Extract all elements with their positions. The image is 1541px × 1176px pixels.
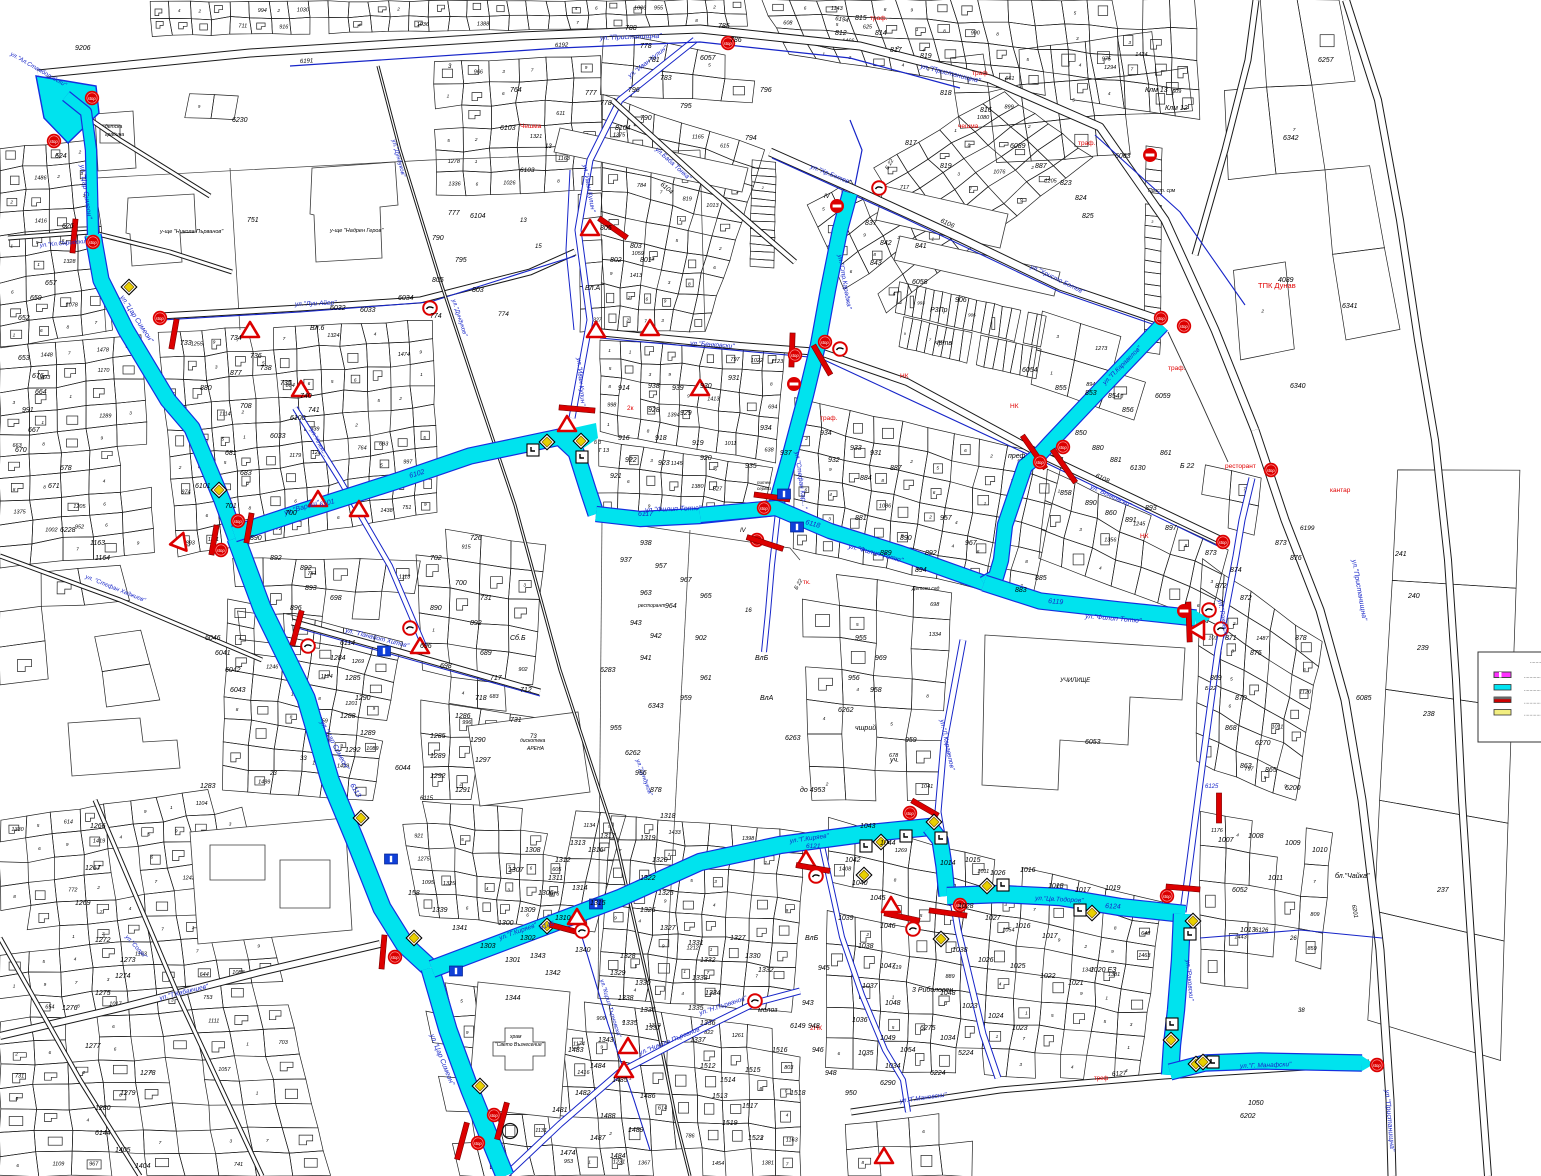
svg-text:9: 9	[424, 502, 427, 507]
svg-text:1286: 1286	[455, 713, 471, 720]
svg-text:9: 9	[340, 743, 343, 748]
svg-text:1275: 1275	[95, 990, 111, 997]
svg-text:921: 921	[414, 834, 423, 840]
svg-text:965: 965	[700, 593, 712, 600]
svg-text:664: 664	[35, 389, 47, 396]
svg-text:3: 3	[1019, 1062, 1022, 1067]
svg-text:1026: 1026	[990, 870, 1006, 877]
svg-text:6052: 6052	[1232, 887, 1248, 894]
svg-text:2: 2	[56, 174, 60, 179]
svg-text:13: 13	[545, 144, 552, 150]
svg-text:880: 880	[200, 385, 212, 392]
svg-text:889: 889	[880, 550, 892, 557]
svg-text:6: 6	[933, 490, 936, 495]
svg-text:1046: 1046	[880, 923, 896, 930]
svg-text:786: 786	[685, 1134, 695, 1140]
svg-text:6: 6	[713, 265, 716, 270]
svg-text:1246: 1246	[266, 664, 279, 670]
svg-text:5: 5	[423, 435, 426, 440]
svg-text:6: 6	[977, 549, 980, 554]
svg-text:878: 878	[1295, 635, 1307, 642]
svg-text:4: 4	[999, 982, 1002, 987]
svg-text:6: 6	[595, 6, 598, 11]
svg-text:1310: 1310	[555, 915, 571, 922]
svg-text:4: 4	[1108, 91, 1111, 96]
svg-text:3: 3	[1076, 36, 1079, 41]
svg-text:2: 2	[398, 396, 402, 401]
svg-text:6130: 6130	[1130, 465, 1146, 472]
svg-text:7: 7	[531, 68, 534, 73]
svg-text:3: 3	[1128, 40, 1131, 45]
svg-text:887: 887	[890, 465, 903, 472]
svg-text:681: 681	[225, 450, 237, 457]
svg-text:1331: 1331	[688, 940, 704, 947]
svg-text:1018: 1018	[1048, 883, 1064, 890]
svg-text:948: 948	[808, 1023, 820, 1030]
svg-text:............: ............	[1524, 700, 1541, 706]
svg-text:854: 854	[1108, 393, 1120, 400]
svg-text:ВлА: ВлА	[760, 695, 774, 702]
svg-text:6127: 6127	[1112, 1070, 1127, 1078]
svg-text:796: 796	[628, 87, 640, 94]
svg-text:1487: 1487	[1256, 636, 1269, 642]
svg-text:717: 717	[490, 675, 503, 682]
svg-text:1: 1	[420, 372, 423, 377]
svg-text:6: 6	[466, 906, 469, 911]
svg-text:8: 8	[249, 505, 252, 510]
svg-text:9: 9	[101, 436, 104, 441]
svg-text:8: 8	[236, 707, 239, 712]
svg-text:8: 8	[43, 485, 46, 490]
svg-text:1010: 1010	[1312, 847, 1328, 854]
svg-text:9: 9	[786, 908, 789, 913]
svg-text:5: 5	[447, 138, 450, 143]
svg-text:676: 676	[32, 373, 44, 380]
svg-text:608: 608	[783, 20, 793, 26]
svg-text:916: 916	[279, 24, 289, 30]
svg-text:6343: 6343	[648, 703, 664, 710]
svg-text:1025: 1025	[1010, 963, 1026, 970]
svg-text:1275: 1275	[418, 857, 431, 863]
svg-text:1027: 1027	[985, 915, 1002, 922]
svg-text:914: 914	[618, 385, 630, 392]
svg-text:храм: храм	[509, 1034, 522, 1040]
svg-text:1336: 1336	[448, 181, 461, 187]
svg-text:1134: 1134	[584, 823, 596, 829]
svg-text:1289: 1289	[99, 414, 111, 420]
svg-text:6: 6	[308, 381, 311, 386]
svg-text:6224: 6224	[930, 1070, 946, 1077]
svg-text:237: 237	[1436, 887, 1450, 894]
svg-text:9: 9	[257, 944, 260, 949]
svg-text:8104: 8104	[615, 125, 631, 132]
svg-text:1269: 1269	[352, 659, 364, 665]
svg-text:893: 893	[305, 585, 317, 592]
svg-text:9: 9	[664, 299, 667, 304]
svg-text:683: 683	[489, 694, 499, 700]
svg-text:696: 696	[420, 643, 432, 650]
svg-text:stop: stop	[1180, 324, 1189, 329]
svg-text:967: 967	[89, 1162, 99, 1168]
svg-text:958: 958	[870, 687, 882, 694]
svg-text:1297: 1297	[475, 757, 492, 764]
svg-text:stop: stop	[156, 316, 165, 321]
svg-text:7: 7	[969, 187, 972, 192]
svg-text:1269: 1269	[895, 848, 907, 854]
svg-text:648: 648	[1141, 931, 1151, 937]
svg-text:2: 2	[825, 782, 829, 787]
svg-text:920: 920	[700, 455, 712, 462]
svg-text:stop: stop	[391, 955, 400, 960]
svg-text:6033: 6033	[270, 433, 286, 440]
svg-text:740: 740	[300, 393, 312, 400]
svg-text:1482: 1482	[575, 1090, 591, 1097]
svg-text:4: 4	[634, 987, 637, 992]
svg-text:5: 5	[15, 1096, 18, 1101]
svg-text:2: 2	[712, 5, 716, 10]
svg-text:8: 8	[1114, 925, 1117, 930]
svg-text:1011: 1011	[977, 869, 989, 875]
svg-text:5: 5	[460, 998, 463, 1003]
svg-text:955: 955	[855, 635, 867, 642]
svg-text:701: 701	[225, 503, 237, 510]
svg-text:6103: 6103	[520, 167, 535, 174]
svg-text:653: 653	[18, 355, 30, 362]
svg-text:7: 7	[644, 318, 647, 323]
svg-text:1285: 1285	[430, 733, 446, 740]
svg-text:8: 8	[968, 143, 971, 148]
svg-text:751: 751	[247, 217, 259, 224]
svg-text:711: 711	[238, 24, 247, 30]
svg-text:1: 1	[246, 1041, 249, 1046]
svg-text:1448: 1448	[41, 352, 54, 358]
svg-text:6283: 6283	[600, 667, 616, 674]
svg-text:5: 5	[1026, 57, 1029, 62]
svg-text:1324: 1324	[327, 333, 339, 339]
svg-text:5: 5	[892, 1025, 895, 1030]
svg-text:6149: 6149	[790, 1023, 806, 1030]
svg-text:6: 6	[105, 522, 108, 527]
svg-text:802: 802	[610, 257, 622, 264]
svg-text:918: 918	[655, 435, 667, 442]
svg-text:4: 4	[1071, 1065, 1074, 1070]
svg-text:785: 785	[718, 23, 730, 30]
svg-text:819: 819	[683, 197, 692, 203]
svg-text:803: 803	[784, 1065, 794, 1071]
svg-text:777: 777	[585, 90, 598, 97]
svg-text:1013: 1013	[1240, 927, 1256, 934]
svg-text:1334: 1334	[929, 632, 941, 638]
svg-text:241: 241	[1394, 551, 1407, 558]
svg-text:885: 885	[1035, 575, 1047, 582]
svg-text:stop: stop	[1267, 468, 1276, 473]
svg-text:9: 9	[66, 842, 69, 847]
svg-text:5: 5	[377, 398, 380, 403]
svg-text:1404: 1404	[135, 1163, 151, 1170]
svg-text:6117: 6117	[638, 511, 654, 518]
svg-text:2: 2	[459, 781, 463, 786]
svg-text:1343: 1343	[530, 953, 546, 960]
svg-text:1336: 1336	[700, 1020, 716, 1027]
svg-text:1288: 1288	[340, 713, 356, 720]
svg-text:801: 801	[640, 257, 652, 264]
svg-text:1011: 1011	[1272, 725, 1284, 731]
svg-text:7: 7	[1313, 879, 1316, 884]
svg-text:5: 5	[690, 878, 693, 883]
svg-text:6192: 6192	[555, 43, 569, 49]
svg-text:873: 873	[1275, 540, 1287, 547]
svg-text:1301: 1301	[505, 957, 521, 964]
svg-text:1307: 1307	[508, 867, 525, 874]
svg-text:6115: 6115	[420, 796, 434, 802]
svg-text:1486: 1486	[640, 1093, 656, 1100]
svg-text:916: 916	[618, 435, 630, 442]
svg-text:9: 9	[829, 467, 832, 472]
svg-text:1388: 1388	[477, 21, 490, 27]
svg-text:1266: 1266	[90, 823, 106, 830]
svg-text:stop: stop	[234, 519, 243, 524]
svg-text:stop: stop	[1059, 445, 1068, 450]
svg-text:1179: 1179	[289, 453, 301, 459]
svg-text:837: 837	[865, 220, 878, 227]
svg-text:1512: 1512	[700, 1063, 716, 1070]
svg-text:993: 993	[917, 300, 925, 305]
svg-text:703: 703	[279, 1040, 289, 1046]
svg-text:2: 2	[804, 436, 808, 441]
svg-text:преф: преф	[1008, 453, 1026, 460]
svg-text:1054: 1054	[900, 1047, 916, 1054]
svg-text:890: 890	[1085, 500, 1097, 507]
svg-text:8: 8	[894, 878, 897, 883]
svg-text:906: 906	[968, 313, 976, 318]
svg-text:881: 881	[1110, 457, 1122, 464]
svg-text:796: 796	[760, 87, 772, 94]
svg-text:893: 893	[1145, 505, 1157, 512]
svg-text:950: 950	[845, 1090, 857, 1097]
svg-text:4: 4	[178, 8, 181, 13]
svg-text:961: 961	[700, 675, 712, 682]
svg-text:6: 6	[646, 297, 649, 302]
svg-text:8: 8	[290, 714, 293, 719]
svg-text:238: 238	[1422, 711, 1435, 718]
svg-text:3: 3	[1130, 1022, 1133, 1027]
svg-text:чешма: чешма	[958, 123, 979, 130]
svg-text:1030: 1030	[297, 8, 310, 14]
svg-text:6089: 6089	[1010, 143, 1026, 150]
svg-text:1037: 1037	[862, 983, 879, 990]
svg-text:5: 5	[1230, 676, 1233, 681]
svg-text:1: 1	[607, 422, 610, 427]
svg-text:5: 5	[890, 721, 893, 726]
svg-text:2: 2	[627, 295, 631, 300]
svg-text:1519: 1519	[722, 1120, 738, 1127]
svg-text:5: 5	[676, 238, 679, 243]
svg-text:9: 9	[600, 1045, 603, 1050]
svg-text:943: 943	[802, 1000, 814, 1007]
svg-text:НК: НК	[900, 373, 909, 380]
svg-text:9: 9	[1080, 991, 1083, 996]
svg-text:959: 959	[680, 695, 692, 702]
svg-text:6044: 6044	[395, 765, 411, 772]
svg-text:625: 625	[863, 25, 873, 31]
svg-text:718: 718	[475, 695, 487, 702]
svg-text:1009: 1009	[1285, 840, 1301, 847]
svg-text:5: 5	[1072, 97, 1075, 102]
svg-text:1038: 1038	[858, 943, 874, 950]
svg-text:1: 1	[629, 350, 632, 355]
svg-text:1328: 1328	[63, 259, 76, 265]
svg-text:6257: 6257	[1318, 57, 1335, 64]
svg-text:1043: 1043	[860, 823, 876, 830]
svg-text:1165: 1165	[692, 135, 705, 141]
svg-text:6124: 6124	[1105, 903, 1121, 911]
svg-text:956: 956	[635, 770, 647, 777]
svg-text:16: 16	[745, 608, 752, 614]
svg-text:1: 1	[635, 964, 638, 969]
svg-text:1: 1	[1105, 996, 1108, 1001]
svg-text:1311: 1311	[548, 875, 563, 882]
svg-text:919: 919	[692, 440, 704, 447]
svg-text:6: 6	[530, 865, 533, 870]
svg-text:stop: stop	[89, 240, 98, 245]
svg-text:881: 881	[855, 515, 867, 522]
svg-text:8: 8	[760, 1086, 763, 1091]
svg-text:1380: 1380	[691, 484, 704, 490]
svg-text:702: 702	[430, 555, 442, 562]
svg-text:6342: 6342	[1283, 135, 1299, 142]
svg-text:1289: 1289	[430, 753, 446, 760]
svg-text:6: 6	[206, 513, 209, 518]
svg-text:1338: 1338	[618, 995, 634, 1002]
svg-text:9: 9	[585, 65, 588, 70]
svg-text:5: 5	[708, 63, 711, 68]
svg-text:3: 3	[1056, 334, 1059, 339]
svg-text:6230: 6230	[232, 117, 248, 124]
svg-text:1514: 1514	[720, 1077, 736, 1084]
svg-text:818: 818	[940, 90, 952, 97]
svg-text:IV: IV	[740, 528, 747, 534]
svg-text:890: 890	[250, 535, 262, 542]
svg-text:1024: 1024	[988, 1013, 1004, 1020]
svg-text:6043: 6043	[230, 687, 246, 694]
svg-text:тк.: тк.	[803, 579, 811, 586]
svg-text:1303: 1303	[480, 943, 496, 950]
svg-text:795: 795	[680, 103, 692, 110]
svg-text:6119: 6119	[1048, 598, 1064, 606]
svg-text:7: 7	[100, 909, 103, 914]
svg-text:823: 823	[1060, 180, 1072, 187]
svg-text:786: 786	[730, 37, 742, 44]
svg-text:градина: градина	[105, 132, 124, 138]
svg-text:774: 774	[498, 311, 509, 318]
svg-text:2: 2	[78, 149, 82, 154]
svg-text:609: 609	[1172, 89, 1181, 95]
svg-text:6033: 6033	[360, 307, 376, 314]
svg-text:1302: 1302	[520, 935, 536, 942]
svg-text:1019: 1019	[1105, 885, 1121, 892]
svg-text:НК: НК	[1140, 533, 1149, 540]
svg-text:683: 683	[240, 470, 252, 477]
svg-text:735: 735	[280, 380, 292, 387]
svg-text:1269: 1269	[75, 900, 91, 907]
svg-text:1163: 1163	[558, 156, 571, 162]
svg-text:815: 815	[855, 15, 867, 22]
svg-text:1316: 1316	[588, 847, 604, 854]
svg-text:4: 4	[129, 906, 132, 911]
svg-text:929: 929	[680, 410, 692, 417]
svg-text:850: 850	[1075, 430, 1087, 437]
svg-text:615: 615	[720, 143, 730, 149]
svg-text:8: 8	[1185, 543, 1188, 548]
svg-text:б 3: б 3	[594, 440, 601, 446]
svg-text:990: 990	[971, 31, 981, 37]
svg-text:7: 7	[786, 1162, 789, 1167]
svg-text:1326: 1326	[640, 907, 656, 914]
svg-text:1176: 1176	[1211, 828, 1224, 834]
svg-text:stop: stop	[760, 506, 769, 511]
svg-text:2: 2	[1260, 308, 1264, 313]
svg-text:698: 698	[440, 663, 452, 670]
svg-text:1294: 1294	[1104, 65, 1116, 71]
svg-text:7: 7	[68, 351, 71, 356]
svg-text:2: 2	[96, 885, 100, 890]
svg-text:4: 4	[829, 492, 832, 497]
svg-text:1008: 1008	[1248, 833, 1264, 840]
svg-text:9: 9	[44, 982, 47, 987]
svg-text:............: ............	[1524, 687, 1541, 693]
svg-text:670: 670	[15, 447, 27, 454]
svg-text:9206: 9206	[75, 45, 91, 52]
svg-text:4089: 4089	[1278, 277, 1294, 284]
svg-text:6: 6	[850, 269, 853, 274]
svg-text:4: 4	[486, 886, 489, 891]
svg-text:975: 975	[1102, 56, 1112, 62]
svg-text:1: 1	[954, 128, 957, 133]
svg-text:1315: 1315	[590, 900, 606, 907]
svg-text:967: 967	[965, 540, 978, 547]
svg-text:3: 3	[668, 280, 671, 285]
svg-text:траф.: траф.	[820, 415, 838, 422]
svg-text:1433: 1433	[669, 830, 682, 836]
svg-text:2: 2	[1083, 944, 1087, 949]
svg-text:896: 896	[290, 605, 302, 612]
svg-text:3: 3	[714, 879, 717, 884]
svg-text:7: 7	[75, 980, 78, 985]
svg-text:842: 842	[880, 240, 892, 247]
svg-text:8: 8	[770, 381, 773, 386]
svg-text:1: 1	[683, 969, 686, 974]
svg-text:чшрий: чшрий	[855, 724, 876, 732]
svg-text:712: 712	[520, 687, 532, 694]
svg-text:7: 7	[155, 879, 158, 884]
svg-text:1284: 1284	[330, 655, 346, 662]
svg-text:814: 814	[875, 30, 887, 37]
svg-text:1089: 1089	[366, 746, 378, 752]
svg-text:stop: stop	[906, 811, 915, 816]
svg-text:1040: 1040	[852, 880, 868, 887]
svg-text:stop: stop	[50, 139, 59, 144]
svg-text:3: 3	[107, 977, 110, 982]
svg-text:906: 906	[955, 297, 967, 304]
svg-text:1049: 1049	[880, 1035, 896, 1042]
svg-text:питен: питен	[757, 480, 771, 485]
svg-text:5: 5	[42, 959, 45, 964]
svg-text:1332: 1332	[700, 957, 716, 964]
svg-text:659: 659	[30, 295, 42, 302]
svg-text:ресторант: ресторант	[637, 603, 665, 609]
svg-text:892: 892	[925, 550, 937, 557]
svg-text:1015: 1015	[965, 857, 981, 864]
